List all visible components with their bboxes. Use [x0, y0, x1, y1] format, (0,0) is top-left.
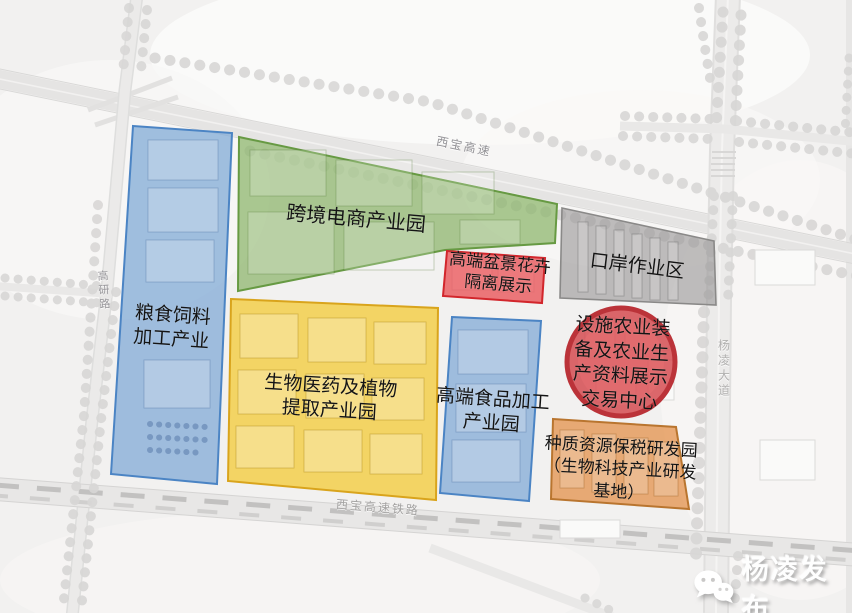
watermark: 杨凌发布: [692, 548, 852, 613]
zone-biomedicine-plant-extract: [228, 299, 438, 500]
map-canvas: [0, 0, 852, 613]
planning-map: 粮食饲料 加工产业 跨境电商产业园 高端盆景花卉 隔离展示 口岸作业区 生物医药…: [0, 0, 852, 613]
wechat-icon: [692, 567, 736, 607]
zone-germplasm-bonded-rnd: [551, 419, 689, 509]
zone-agri-equipment-trade-center: [567, 308, 675, 416]
zone-bonsai-flower-quarantine: [443, 251, 545, 303]
zone-food-processing: [440, 317, 541, 501]
zone-grain-feed-processing: [111, 126, 232, 484]
watermark-text: 杨凌发布: [742, 548, 852, 613]
